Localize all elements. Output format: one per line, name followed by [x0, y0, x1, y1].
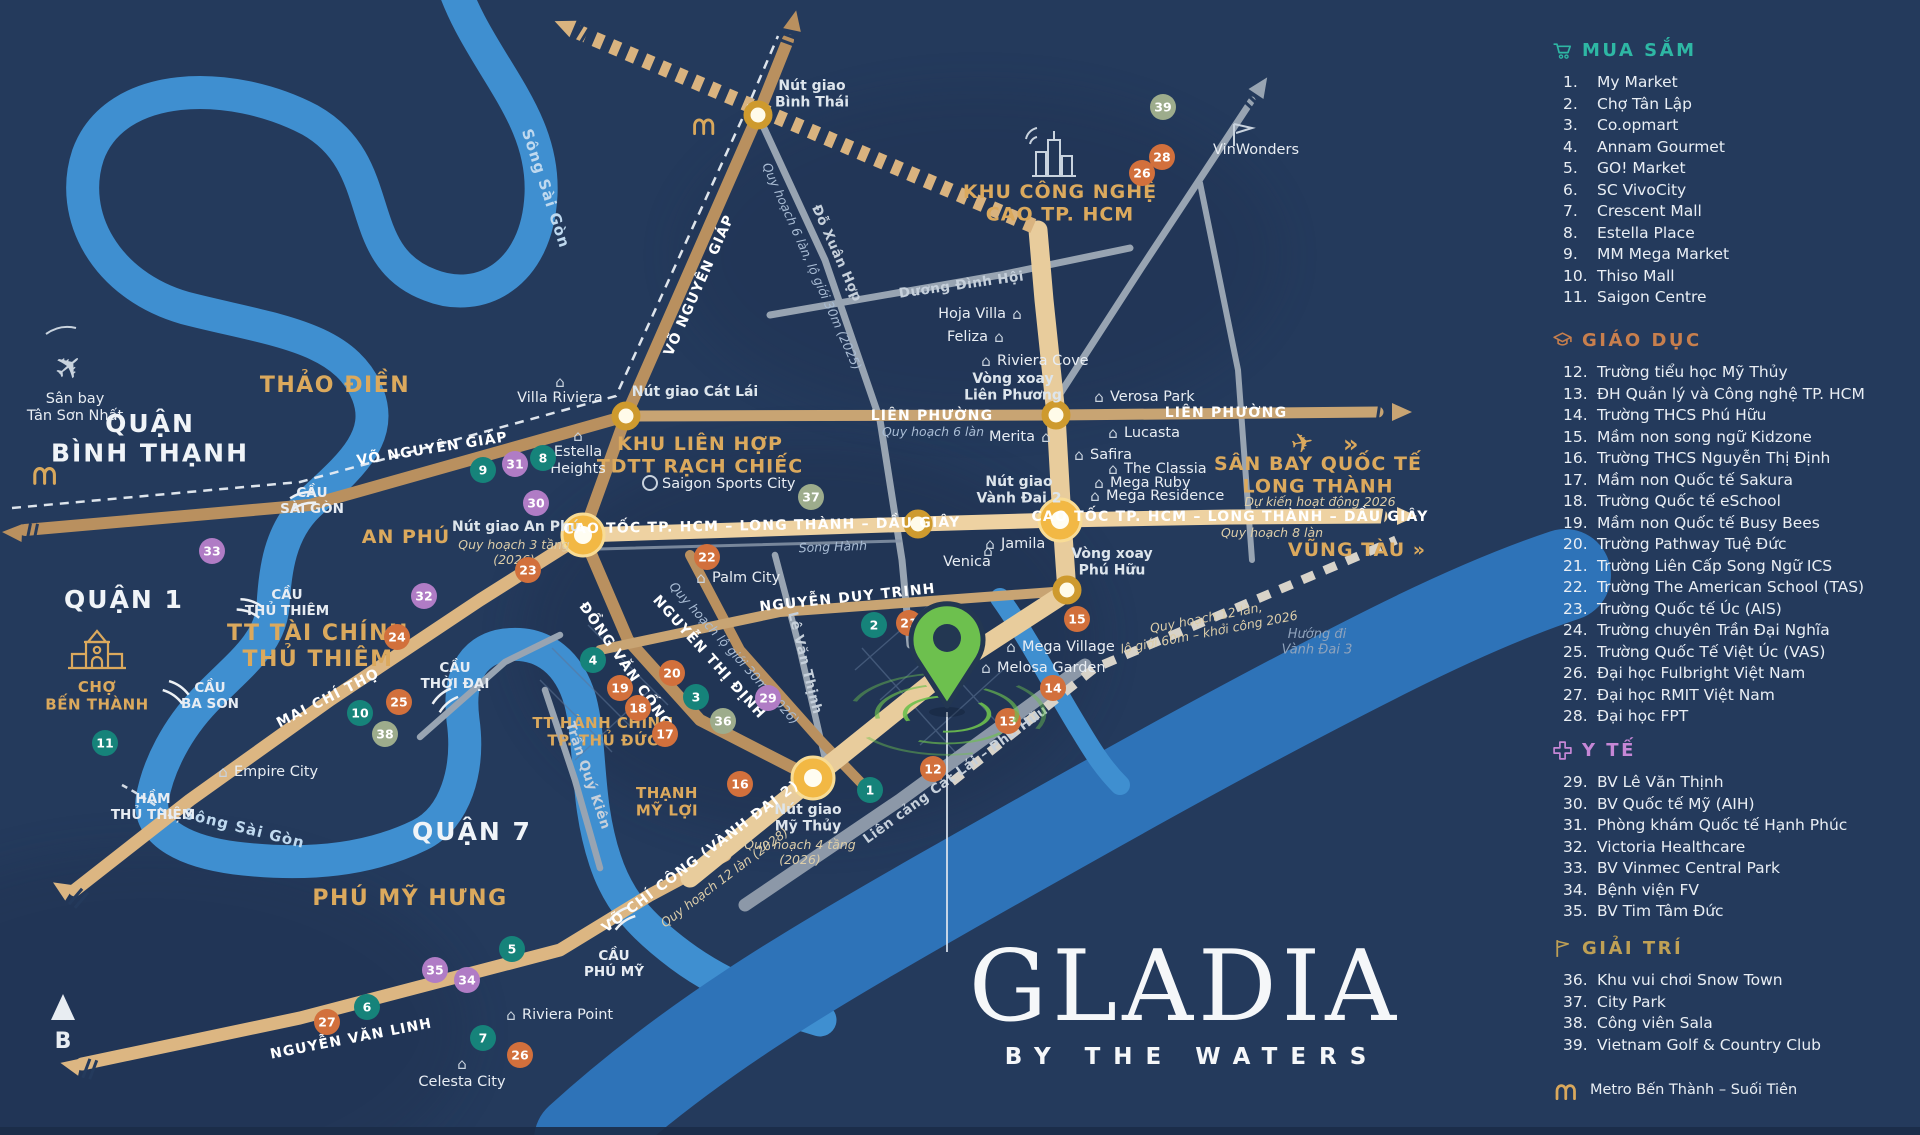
place-merita: ⌂Merita: [989, 428, 1051, 446]
area-phu-my-hung: PHÚ MỸ HƯNG: [312, 885, 507, 911]
legend-item-15: 15.Mầm non song ngữ Kidzone: [1563, 427, 1914, 449]
svg-text:23: 23: [519, 563, 536, 578]
marker-2-shopping: 2: [861, 612, 887, 638]
marker-26-education: 26: [507, 1042, 533, 1068]
legend-item-39: 39.Vietnam Golf & Country Club: [1563, 1035, 1914, 1057]
legend-item-37: 37.City Park: [1563, 992, 1914, 1014]
note-planned-12-lan: Quy hoạch 12 làn,lộ giới 60m – khởi công…: [1116, 593, 1299, 657]
svg-text:26: 26: [511, 1048, 529, 1063]
legend-item-number: 30.: [1563, 794, 1597, 816]
legend-item-label: Crescent Mall: [1597, 201, 1702, 223]
svg-text:34: 34: [458, 973, 476, 988]
marker-9-shopping: 9: [470, 457, 496, 483]
legend-item-label: Vietnam Golf & Country Club: [1597, 1035, 1821, 1057]
legend-item-9: 9.MM Mega Market: [1563, 244, 1914, 266]
legend-item-4: 4.Annam Gourmet: [1563, 137, 1914, 159]
svg-text:9: 9: [479, 463, 488, 478]
svg-text:5: 5: [508, 942, 517, 957]
legend-item-30: 30.BV Quốc tế Mỹ (AIH): [1563, 794, 1914, 816]
legend-item-number: 1.: [1563, 72, 1597, 94]
svg-text:7: 7: [479, 1031, 488, 1046]
area-an-phu: AN PHÚ: [362, 524, 450, 548]
junction-label-cat-lai: Nút giao Cát Lái: [632, 384, 758, 400]
place-label: Merita: [989, 429, 1035, 445]
svg-text:18: 18: [629, 701, 646, 716]
svg-text:31: 31: [506, 457, 523, 472]
legend-item-number: 29.: [1563, 772, 1597, 794]
svg-text:8: 8: [539, 451, 548, 466]
house-icon: ⌂: [1074, 446, 1084, 464]
legend-item-label: Trường Quốc Tế Việt Úc (VAS): [1597, 642, 1825, 664]
marker-31-healthcare: 31: [502, 451, 528, 477]
logo-subtitle: BY THE WATERS: [1005, 1044, 1380, 1070]
place-label: Jamila: [1000, 536, 1045, 552]
marker-30-healthcare: 30: [523, 490, 549, 516]
legend-item-label: Victoria Healthcare: [1597, 837, 1745, 859]
svg-text:22: 22: [698, 550, 715, 565]
legend-item-number: 35.: [1563, 901, 1597, 923]
legend-item-number: 16.: [1563, 448, 1597, 470]
svg-text:4: 4: [589, 653, 598, 668]
svg-text:30: 30: [527, 496, 545, 511]
legend-item-14: 14.Trường THCS Phú Hữu: [1563, 405, 1914, 427]
marker-39-entertainment: 39: [1150, 94, 1176, 120]
legend-item-number: 4.: [1563, 137, 1597, 159]
legend-item-number: 13.: [1563, 384, 1597, 406]
legend-panel: Metro Bến Thành – Suối Tiên MUA SẮM1.My …: [1552, 0, 1920, 1135]
legend-item-3: 3.Co.opmart: [1563, 115, 1914, 137]
legend-item-number: 25.: [1563, 642, 1597, 664]
svg-text:32: 32: [415, 589, 432, 604]
place-label: Verosa Park: [1110, 389, 1195, 405]
legend-item-label: Saigon Centre: [1597, 287, 1707, 309]
flag-icon: [1552, 938, 1573, 959]
place-label: Mega Village: [1022, 639, 1115, 655]
place-label: EstellaHeights: [550, 444, 606, 477]
marker-6-shopping: 6: [354, 994, 380, 1020]
house-icon: ⌂: [1108, 424, 1118, 442]
place-label: Mega Residence: [1106, 488, 1224, 504]
marker-23-education: 23: [515, 557, 541, 583]
place-label: Riviera Cove: [997, 353, 1089, 369]
legend-item-label: My Market: [1597, 72, 1678, 94]
legend-item-label: Mầm non Quốc tế Sakura: [1597, 470, 1793, 492]
legend-item-number: 28.: [1563, 706, 1597, 728]
place-label: Riviera Point: [522, 1007, 613, 1023]
legend-item-6: 6.SC VivoCity: [1563, 180, 1914, 202]
road-label-lien-phuong-1: LIÊN PHƯỜNG: [871, 406, 994, 424]
house-icon: ⌂: [1006, 638, 1016, 656]
legend-title-education: GIÁO DỤC: [1582, 330, 1702, 351]
marker-10-shopping: 10: [347, 700, 373, 726]
legend-item-label: Phòng khám Quốc tế Hạnh Phúc: [1597, 815, 1847, 837]
place-label: Feliza: [947, 329, 988, 345]
road-label-song-hanh: Song Hành: [798, 538, 867, 555]
place-lucasta: ⌂Lucasta: [1108, 424, 1180, 442]
legend-item-label: Trường THCS Phú Hữu: [1597, 405, 1766, 427]
legend-item-number: 33.: [1563, 858, 1597, 880]
project-logo: GLADIA BY THE WATERS: [969, 930, 1401, 1070]
svg-text:37: 37: [802, 490, 819, 505]
house-icon: ⌂: [981, 352, 991, 370]
marker-37-entertainment: 37: [798, 484, 824, 510]
legend-item-number: 8.: [1563, 223, 1597, 245]
legend-item-number: 34.: [1563, 880, 1597, 902]
area-quan-7: QUẬN 7: [412, 816, 532, 846]
junction-label-binh-thai: Nút giaoBình Thái: [775, 78, 849, 111]
legend-item-35: 35.BV Tim Tâm Đức: [1563, 901, 1914, 923]
marker-28-education: 28: [1149, 144, 1175, 170]
marker-33-healthcare: 33: [199, 538, 225, 564]
legend-item-number: 15.: [1563, 427, 1597, 449]
compass-label: B: [55, 1029, 72, 1054]
marker-25-education: 25: [386, 689, 412, 715]
house-icon: ⌂: [1094, 388, 1104, 406]
legend-item-5: 5.GO! Market: [1563, 158, 1914, 180]
legend-item-label: Co.opmart: [1597, 115, 1678, 137]
legend-item-26: 26.Đại học Fulbright Việt Nam: [1563, 663, 1914, 685]
legend-item-label: City Park: [1597, 992, 1666, 1014]
legend-item-label: Annam Gourmet: [1597, 137, 1725, 159]
legend-item-label: Chợ Tân Lập: [1597, 94, 1692, 116]
place-feliza: ⌂Feliza: [947, 328, 1004, 346]
legend-item-number: 23.: [1563, 599, 1597, 621]
legend-item-number: 3.: [1563, 115, 1597, 137]
legend-item-label: SC VivoCity: [1597, 180, 1686, 202]
house-icon: ⌂: [1041, 428, 1051, 446]
legend-item-number: 5.: [1563, 158, 1597, 180]
svg-text:25: 25: [390, 695, 407, 710]
svg-text:26: 26: [1133, 166, 1151, 181]
legend-item-12: 12.Trường tiểu học Mỹ Thủy: [1563, 362, 1914, 384]
marker-12-education: 12: [920, 756, 946, 782]
legend-item-27: 27.Đại học RMIT Việt Nam: [1563, 685, 1914, 707]
marker-35-healthcare: 35: [422, 957, 448, 983]
legend-item-33: 33.BV Vinmec Central Park: [1563, 858, 1914, 880]
place-mega-village: ⌂Mega Village: [1006, 638, 1115, 656]
airplane-icon-tan-son-nhat: ✈: [46, 327, 94, 392]
legend-item-label: Đại học Fulbright Việt Nam: [1597, 663, 1805, 685]
svg-text:35: 35: [426, 963, 443, 978]
house-icon: ⌂: [1012, 305, 1022, 323]
place-jamila: ⌂Jamila: [985, 535, 1045, 553]
legend-item-number: 12.: [1563, 362, 1597, 384]
junction-phu-huu: [1056, 579, 1078, 601]
svg-text:14: 14: [1044, 681, 1062, 696]
legend-item-label: Trường The American School (TAS): [1597, 577, 1864, 599]
legend-item-number: 27.: [1563, 685, 1597, 707]
marker-29-healthcare: 29: [755, 685, 781, 711]
legend-item-label: Trường Quốc tế eSchool: [1597, 491, 1781, 513]
marker-18-education: 18: [625, 695, 651, 721]
legend-item-label: Trường chuyên Trần Đại Nghĩa: [1597, 620, 1830, 642]
legend-item-number: 32.: [1563, 837, 1597, 859]
legend-item-number: 26.: [1563, 663, 1597, 685]
marker-15-education: 15: [1064, 606, 1090, 632]
junction-cat-lai: [615, 405, 637, 427]
graduation-cap-icon: [1552, 330, 1573, 351]
legend-item-34: 34.Bệnh viện FV: [1563, 880, 1914, 902]
legend-item-label: Đại học FPT: [1597, 706, 1688, 728]
house-icon: ⌂: [457, 1055, 467, 1073]
area-quan-1: QUẬN 1: [64, 584, 184, 614]
legend-item-number: 14.: [1563, 405, 1597, 427]
legend-item-number: 19.: [1563, 513, 1597, 535]
house-icon: ⌂: [506, 1006, 516, 1024]
legend-item-29: 29.BV Lê Văn Thịnh: [1563, 772, 1914, 794]
junction-label-lien-phuong: Vòng xoayLiên Phương: [964, 371, 1062, 404]
svg-text:10: 10: [351, 706, 369, 721]
legend-item-38: 38.Công viên Sala: [1563, 1013, 1914, 1035]
place-riviera-cove: ⌂Riviera Cove: [981, 352, 1088, 370]
junction-binh-thai: [747, 104, 769, 126]
legend-item-label: Mầm non song ngữ Kidzone: [1597, 427, 1812, 449]
legend-item-label: GO! Market: [1597, 158, 1686, 180]
legend-title-shopping: MUA SẮM: [1582, 40, 1696, 61]
legend-item-8: 8.Estella Place: [1563, 223, 1914, 245]
legend-title-entertainment: GIẢI TRÍ: [1582, 938, 1683, 959]
marker-19-education: 19: [607, 675, 633, 701]
legend-header-education: GIÁO DỤC: [1552, 330, 1914, 351]
brochure-map: ✈ ✈ » QUẬNBÌNH THẠNHQUẬN 1QUẬN 7THẢO ĐIỀ…: [0, 0, 1920, 1135]
house-icon: ⌂: [555, 373, 565, 391]
legend-item-label: Công viên Sala: [1597, 1013, 1713, 1035]
legend-section-shopping: MUA SẮM1.My Market2.Chợ Tân Lập3.Co.opma…: [1552, 40, 1914, 309]
legend-item-number: 31.: [1563, 815, 1597, 837]
marker-38-entertainment: 38: [372, 721, 398, 747]
legend-item-number: 20.: [1563, 534, 1597, 556]
area-tt-tai-chinh-thu-thiem: TT TÀI CHÍNHTHỦ THIÊM: [227, 620, 409, 672]
legend-item-32: 32.Victoria Healthcare: [1563, 837, 1914, 859]
legend-section-education: GIÁO DỤC12.Trường tiểu học Mỹ Thủy13.ĐH …: [1552, 330, 1914, 728]
svg-text:✈: ✈: [46, 343, 94, 392]
place-label: Villa Riviera: [517, 390, 603, 406]
area-khu-cong-nghe-cao: KHU CÔNG NGHỆCAO TP. HCM: [963, 179, 1157, 225]
legend-item-label: Thiso Mall: [1597, 266, 1675, 288]
legend-item-20: 20.Trường Pathway Tuệ Đức: [1563, 534, 1914, 556]
svg-text:19: 19: [611, 681, 628, 696]
legend-section-healthcare: Y TẾ29.BV Lê Văn Thịnh30.BV Quốc tế Mỹ (…: [1552, 740, 1914, 923]
marker-14-education: 14: [1040, 675, 1066, 701]
place-villa-riviera: ⌂Villa Riviera: [517, 373, 603, 406]
legend-item-label: MM Mega Market: [1597, 244, 1729, 266]
legend-item-28: 28.Đại học FPT: [1563, 706, 1914, 728]
area-thao-dien: THẢO ĐIỀN: [260, 369, 410, 398]
legend-header-healthcare: Y TẾ: [1552, 740, 1914, 761]
legend-item-number: 24.: [1563, 620, 1597, 642]
junction-lien-phuong: [1045, 404, 1067, 426]
svg-text:6: 6: [363, 1000, 372, 1015]
legend-item-24: 24.Trường chuyên Trần Đại Nghĩa: [1563, 620, 1914, 642]
area-san-bay-long-thanh: SÂN BAY QUỐC TẾLONG THÀNH: [1214, 449, 1422, 497]
svg-text:11: 11: [96, 736, 113, 751]
legend-item-number: 38.: [1563, 1013, 1597, 1035]
house-icon: ⌂: [994, 328, 1004, 346]
cart-icon: [1552, 40, 1573, 61]
place-label: Melosa Garden: [997, 660, 1106, 676]
legend-metro-label: Metro Bến Thành – Suối Tiên: [1590, 1082, 1797, 1098]
marker-16-education: 16: [727, 771, 753, 797]
legend-item-label: Trường tiểu học Mỹ Thủy: [1597, 362, 1788, 384]
marker-3-shopping: 3: [683, 684, 709, 710]
logo-title: GLADIA: [969, 930, 1401, 1044]
legend-item-number: 37.: [1563, 992, 1597, 1014]
legend-item-number: 6.: [1563, 180, 1597, 202]
svg-text:16: 16: [731, 777, 749, 792]
legend-item-label: Mầm non Quốc tế Busy Bees: [1597, 513, 1820, 535]
place-label: Celesta City: [418, 1074, 506, 1090]
medical-cross-icon: [1552, 740, 1573, 761]
legend-item-label: Estella Place: [1597, 223, 1695, 245]
legend-item-number: 2.: [1563, 94, 1597, 116]
landmark-san-bay-tan-son-nhat: Sân bayTân Sơn Nhất: [26, 391, 124, 424]
marker-1-shopping: 1: [857, 777, 883, 803]
marker-11-shopping: 11: [92, 730, 118, 756]
legend-item-label: Trường Quốc tế Úc (AIS): [1597, 599, 1782, 621]
legend-item-19: 19.Mầm non Quốc tế Busy Bees: [1563, 513, 1914, 535]
legend-item-label: Bệnh viện FV: [1597, 880, 1699, 902]
legend-header-shopping: MUA SẮM: [1552, 40, 1914, 61]
legend-item-number: 18.: [1563, 491, 1597, 513]
house-icon: ⌂: [981, 659, 991, 677]
legend-item-label: Khu vui chơi Snow Town: [1597, 970, 1783, 992]
house-icon: ⌂: [1090, 487, 1100, 505]
legend-item-label: Trường Pathway Tuệ Đức: [1597, 534, 1787, 556]
area-vung-tau: VŨNG TÀU »: [1288, 537, 1426, 561]
place-label: Lucasta: [1124, 425, 1180, 441]
junction-label-vanh-dai-2: Nút giaoVành Đai 2: [977, 474, 1062, 507]
svg-text:38: 38: [376, 727, 393, 742]
place-label: Venica: [943, 554, 991, 570]
svg-text:27: 27: [318, 1015, 335, 1030]
marker-4-shopping: 4: [580, 647, 606, 673]
ben-thanh-market-icon: [68, 631, 126, 668]
svg-text:29: 29: [759, 691, 776, 706]
place-riviera-point: ⌂Riviera Point: [506, 1006, 613, 1024]
legend-item-number: 21.: [1563, 556, 1597, 578]
svg-text:3: 3: [692, 690, 701, 705]
place-label: Palm City: [712, 570, 781, 586]
marker-34-healthcare: 34: [454, 967, 480, 993]
place-label: Empire City: [234, 764, 319, 780]
place-label: Hoja Villa: [938, 306, 1006, 322]
landmark-cho-ben-thanh: CHỢBẾN THÀNH: [45, 678, 148, 714]
legend-section-entertainment: GIẢI TRÍ36.Khu vui chơi Snow Town37.City…: [1552, 938, 1914, 1056]
marker-7-shopping: 7: [470, 1025, 496, 1051]
marker-5-shopping: 5: [499, 936, 525, 962]
legend-item-16: 16.Trường THCS Nguyễn Thị Định: [1563, 448, 1914, 470]
legend-item-7: 7.Crescent Mall: [1563, 201, 1914, 223]
legend-item-18: 18.Trường Quốc tế eSchool: [1563, 491, 1914, 513]
marker-8-shopping: 8: [530, 445, 556, 471]
legend-item-1: 1.My Market: [1563, 72, 1914, 94]
note-huong-di-vanh-dai-3: Hướng điVành Đai 3: [1282, 627, 1353, 657]
legend-item-2: 2.Chợ Tân Lập: [1563, 94, 1914, 116]
svg-text:17: 17: [656, 727, 673, 742]
legend-item-31: 31.Phòng khám Quốc tế Hạnh Phúc: [1563, 815, 1914, 837]
junction-label-phu-huu: Vòng xoayPhú Hữu: [1071, 546, 1152, 579]
legend-item-17: 17.Mầm non Quốc tế Sakura: [1563, 470, 1914, 492]
legend-item-number: 17.: [1563, 470, 1597, 492]
metro-icon: [1554, 1080, 1580, 1100]
legend-item-11: 11.Saigon Centre: [1563, 287, 1914, 309]
legend-item-number: 36.: [1563, 970, 1597, 992]
svg-text:28: 28: [1153, 150, 1170, 165]
marker-36-entertainment: 36: [710, 708, 736, 734]
legend-title-healthcare: Y TẾ: [1582, 740, 1636, 761]
legend-item-number: 9.: [1563, 244, 1597, 266]
legend-item-label: Trường THCS Nguyễn Thị Định: [1597, 448, 1830, 470]
svg-text:12: 12: [924, 762, 941, 777]
legend-item-13: 13.ĐH Quản lý và Công nghệ TP. HCM: [1563, 384, 1914, 406]
area-thanh-my-loi: THẠNHMỸ LỢI: [636, 784, 698, 820]
legend-metro: Metro Bến Thành – Suối Tiên: [1554, 1080, 1797, 1100]
junction-label-an-phu: Nút giao An Phú: [452, 519, 580, 535]
place-melosa-garden: ⌂Melosa Garden: [981, 659, 1105, 677]
place-mega-residence: ⌂Mega Residence: [1090, 487, 1224, 505]
legend-item-label: BV Quốc tế Mỹ (AIH): [1597, 794, 1755, 816]
legend-item-number: 39.: [1563, 1035, 1597, 1057]
marker-32-healthcare: 32: [411, 583, 437, 609]
legend-item-label: Trường Liên Cấp Song Ngữ ICS: [1597, 556, 1832, 578]
legend-item-label: BV Lê Văn Thịnh: [1597, 772, 1724, 794]
area-khu-lien-hop-tdtt: KHU LIÊN HỢPTDTT RẠCH CHIẾC: [597, 432, 803, 477]
place-vinwonders: VinWonders: [1213, 142, 1299, 158]
svg-text:33: 33: [203, 544, 220, 559]
bridge-cau-phu-my: CẦUPHÚ MỸ: [584, 945, 644, 980]
house-icon: ⌂: [696, 569, 706, 587]
marker-17-education: 17: [652, 721, 678, 747]
svg-text:15: 15: [1068, 612, 1085, 627]
legend-item-36: 36.Khu vui chơi Snow Town: [1563, 970, 1914, 992]
legend-header-entertainment: GIẢI TRÍ: [1552, 938, 1914, 959]
legend-item-22: 22.Trường The American School (TAS): [1563, 577, 1914, 599]
legend-item-label: Đại học RMIT Việt Nam: [1597, 685, 1775, 707]
note-long-thanh: Dự kiến hoạt động 2026: [1244, 494, 1395, 509]
legend-item-number: 10.: [1563, 266, 1597, 288]
place-empire-city: ⌂Empire City: [218, 763, 318, 781]
note-lien-phuong: Quy hoạch 6 làn: [882, 424, 984, 439]
marker-20-education: 20: [659, 660, 685, 686]
legend-item-23: 23.Trường Quốc tế Úc (AIS): [1563, 599, 1914, 621]
legend-item-10: 10.Thiso Mall: [1563, 266, 1914, 288]
marker-27-education: 27: [314, 1009, 340, 1035]
legend-item-number: 7.: [1563, 201, 1597, 223]
svg-text:2: 2: [870, 618, 879, 633]
house-icon: ⌂: [573, 427, 583, 445]
legend-item-21: 21.Trường Liên Cấp Song Ngữ ICS: [1563, 556, 1914, 578]
legend-item-number: 22.: [1563, 577, 1597, 599]
svg-text:36: 36: [714, 714, 732, 729]
place-saigon-sports-city: Saigon Sports City: [662, 476, 796, 492]
legend-item-number: 11.: [1563, 287, 1597, 309]
svg-text:39: 39: [1154, 100, 1171, 115]
svg-text:20: 20: [663, 666, 681, 681]
legend-item-label: BV Vinmec Central Park: [1597, 858, 1780, 880]
marker-24-education: 24: [384, 624, 410, 650]
note-cao-toc: Quy hoạch 8 làn: [1221, 525, 1323, 540]
road-label-lien-phuong-2: LIÊN PHƯỜNG: [1165, 403, 1288, 421]
place-verosa-park: ⌂Verosa Park: [1094, 388, 1195, 406]
legend-item-25: 25.Trường Quốc Tế Việt Úc (VAS): [1563, 642, 1914, 664]
house-icon: ⌂: [218, 763, 228, 781]
svg-text:1: 1: [866, 783, 875, 798]
legend-item-label: BV Tim Tâm Đức: [1597, 901, 1724, 923]
legend-item-label: ĐH Quản lý và Công nghệ TP. HCM: [1597, 384, 1865, 406]
marker-22-education: 22: [694, 544, 720, 570]
svg-text:24: 24: [388, 630, 406, 645]
